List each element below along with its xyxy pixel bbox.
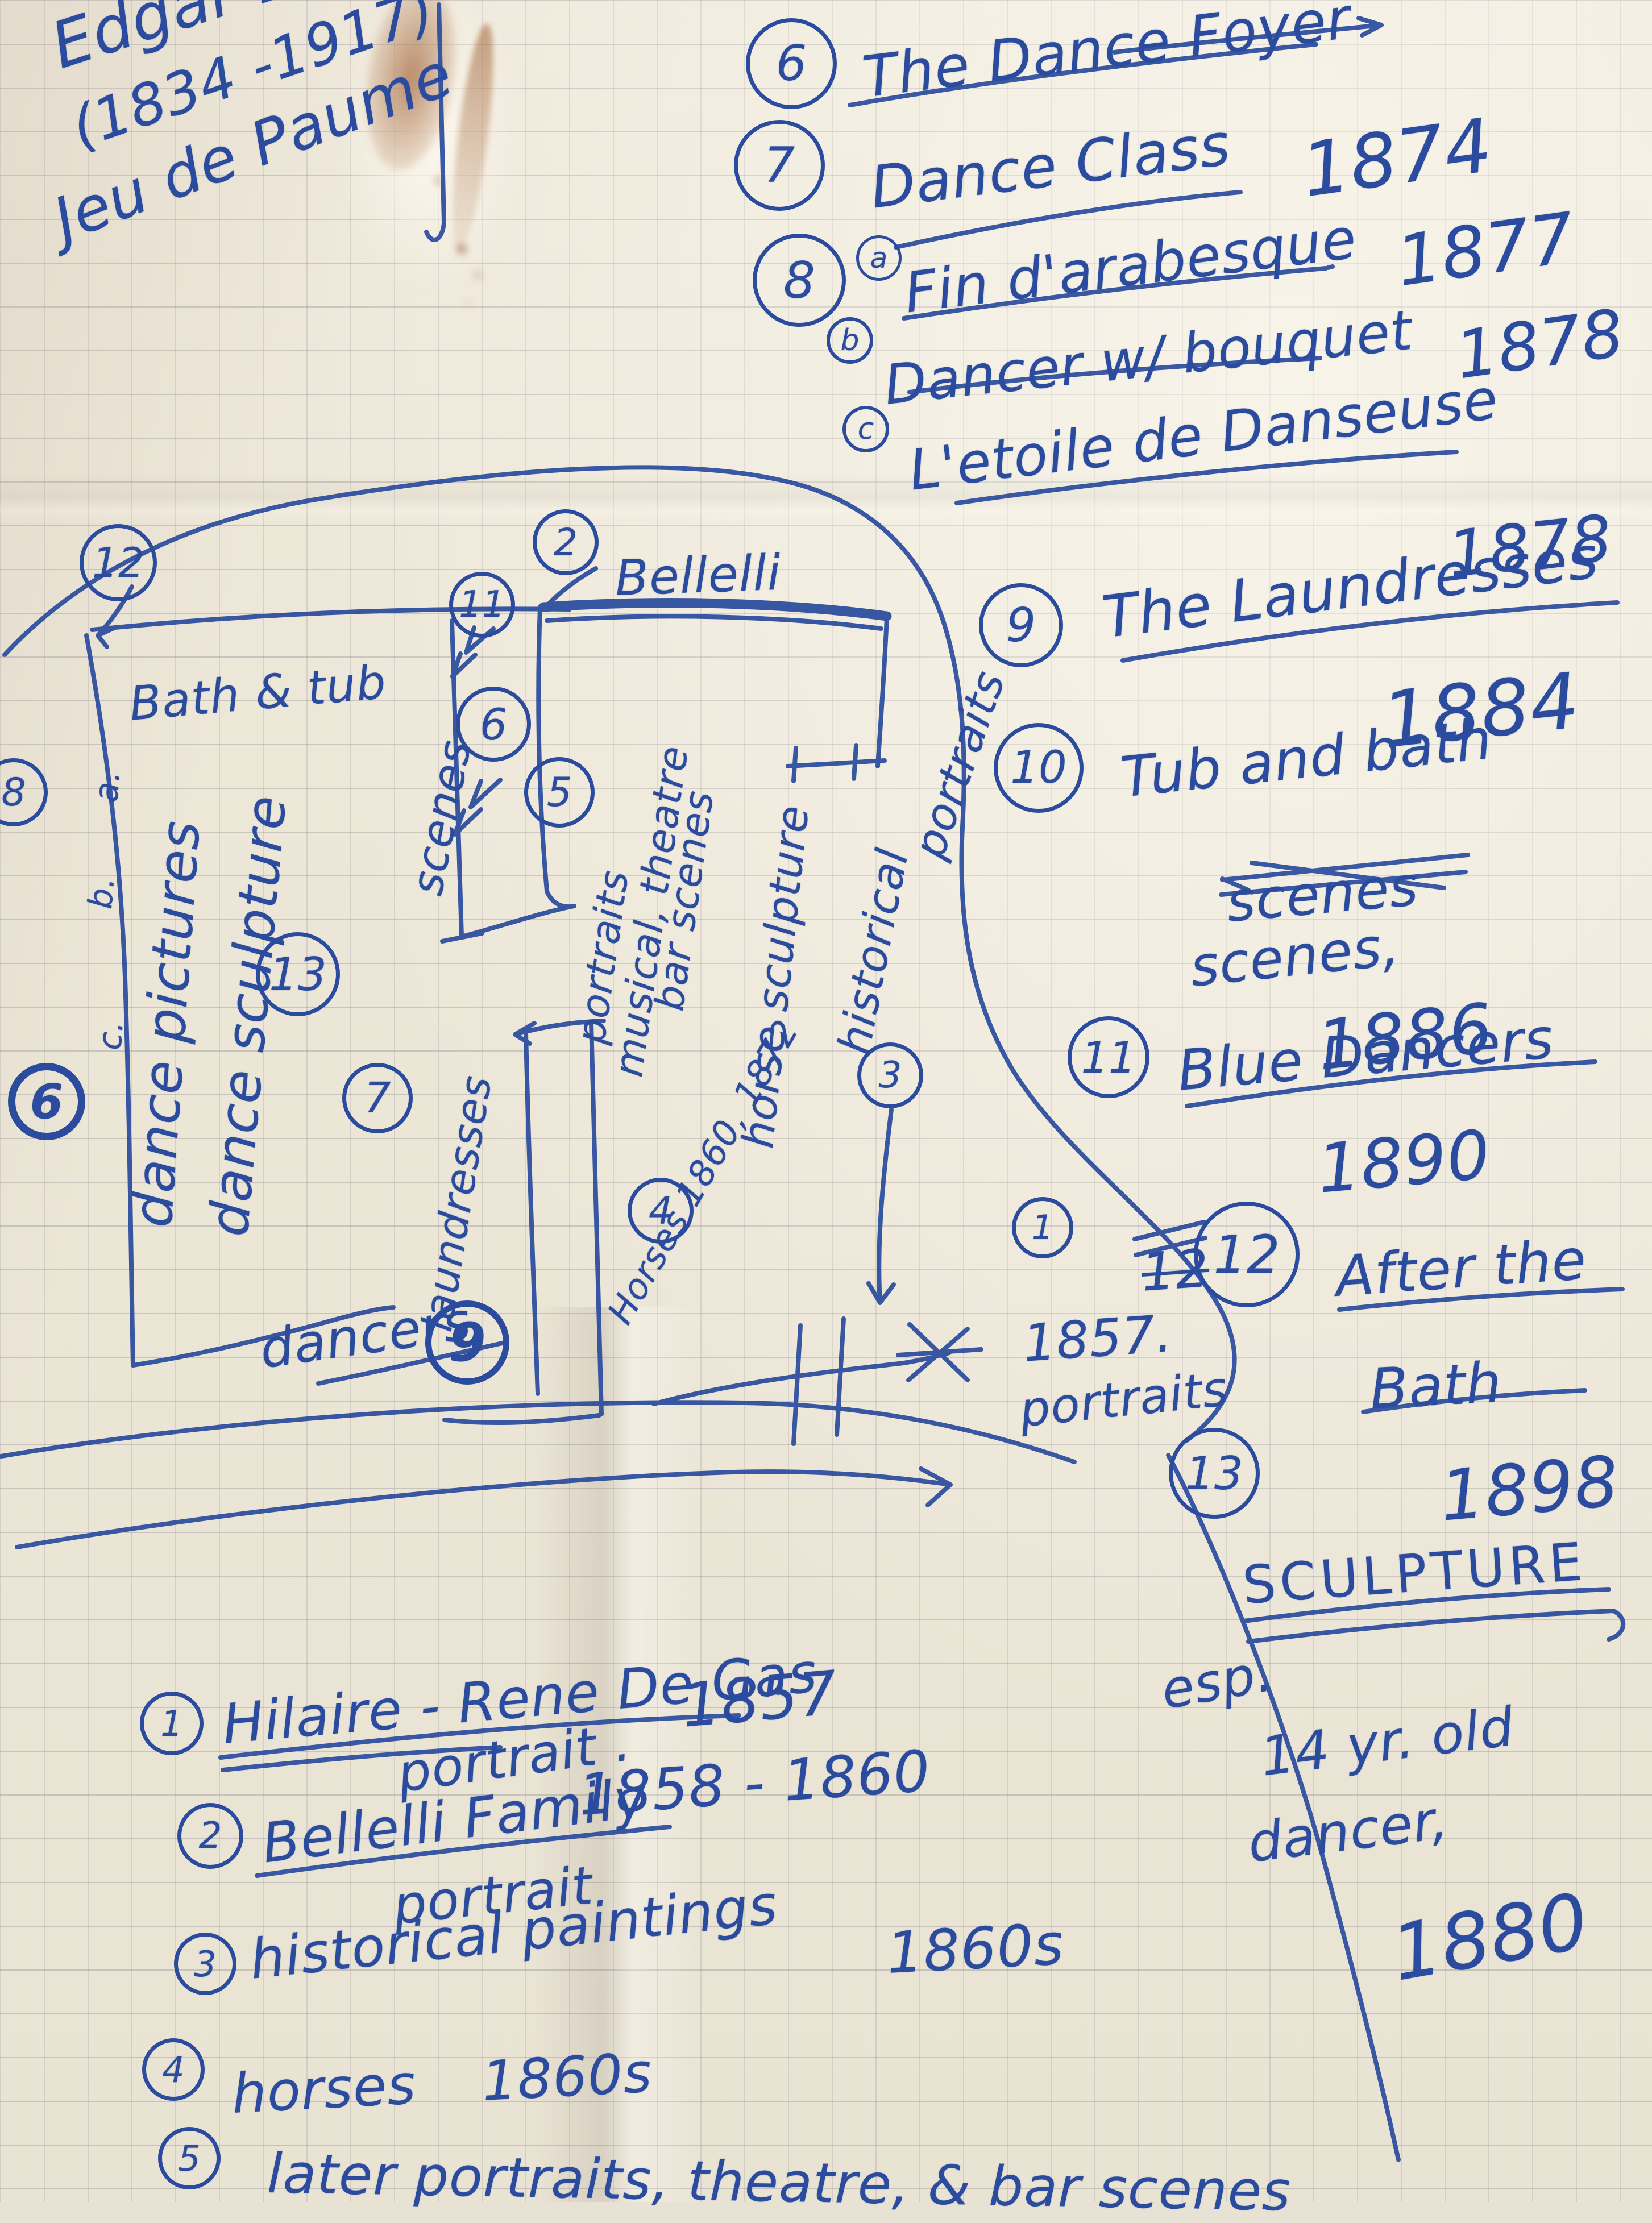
map-num-2: 2 [554,521,578,564]
map-circle-2: 2 [533,509,599,575]
list-circle-12: 12 [1194,1202,1300,1307]
bottom-num-3: 3 [194,1943,216,1985]
bottom-num-5: 5 [178,2138,200,2179]
handwritten-note-photo: Edgar Degas (1834 -1917) Jeu de Paume 6 … [0,0,1652,2202]
map-circle-7: 7 [342,1063,413,1133]
arrow-from-3 [869,1110,894,1303]
list-circle-8: 8 [753,234,846,327]
bottom-circle-5: 5 [158,2127,221,2189]
bottom-num-1: 1 [160,1703,182,1744]
map-num-1: 1 [1032,1208,1053,1248]
map-circle-1: 1 [1012,1197,1073,1258]
list-circle-c: c [842,406,889,452]
map-num-11: 11 [459,584,505,626]
map-circle-5: 5 [524,757,595,828]
bottom-circle-1: 1 [140,1692,204,1755]
list-circle-9: 9 [979,583,1063,667]
list-num-8: 8 [783,251,815,310]
list-num-6: 6 [776,35,807,92]
corridor-right-wall [591,1023,601,1414]
wall-connector [462,906,574,937]
list-marker-a: a [870,242,888,275]
left-room-left-wall [86,635,133,1365]
bottom-wall-upper [1,1402,1074,1462]
right-room-top-thick [543,603,887,616]
bottom-wall-lower-arrow [17,1469,950,1547]
x-mark [898,1324,981,1380]
door-ticks [794,1319,844,1444]
bottom-room-wall [654,1353,949,1404]
map-num-6-left: 6 [30,1074,63,1129]
list-title-bath: Bath [1368,1351,1503,1422]
map-num-12: 12 [92,539,144,587]
list-circle-6: 6 [746,18,837,109]
list-num-10: 10 [1010,742,1066,793]
list-marker-c: c [858,412,874,446]
list-year-1890: 1890 [1314,1115,1493,1208]
list-circle-11: 11 [1068,1016,1149,1098]
list-num-13: 13 [1185,1447,1243,1500]
map-circle-12: 12 [80,524,157,601]
map-anno-1857: 1857. [1021,1304,1174,1374]
list-marker-b: b [840,323,859,358]
map-circle-11: 11 [449,572,515,638]
list-num-11: 11 [1081,1032,1136,1083]
map-num-7: 7 [364,1074,391,1123]
map-num-3: 3 [879,1054,902,1096]
map-num-5: 5 [547,769,572,816]
map-circle-6-left: 6 [8,1063,85,1140]
bottom-circle-2: 2 [177,1803,243,1869]
map-num-8-left: 8 [1,770,26,815]
corridor-left-wall [526,1033,538,1394]
list-circle-b: b [827,317,873,364]
bottom-circle-3: 3 [174,1933,236,1995]
bottom-num-2: 2 [199,1815,222,1857]
list-year-1898: 1898 [1437,1441,1622,1537]
list-circle-8a: a [856,235,902,281]
list-num-7: 7 [764,137,795,194]
map-label-bellelli: Bellelli [614,545,782,607]
bottom-year-1857: 1857 [679,1657,840,1740]
list-circle-10: 10 [994,723,1084,813]
map-num-6-mid: 6 [480,699,507,750]
list-circle-7: 7 [734,120,825,211]
tick-line [788,746,885,781]
map-marker-c: c. [90,1019,131,1052]
right-room-right-wall [878,617,887,766]
corridor-bottom-edge [445,1415,599,1423]
bottom-year-1860s-3: 1860s [885,1911,1065,1987]
bottom-num-4: 4 [162,2049,184,2091]
list-num-12: 12 [1213,1224,1280,1285]
list-circle-13: 13 [1169,1428,1260,1519]
map-marker-a: a. [86,768,128,804]
bottom-title-horses: horses [230,2052,418,2126]
map-marker-b: b. [81,875,122,911]
bottom-year-1860s-4: 1860s [480,2041,654,2113]
list-num-9: 9 [1006,599,1036,653]
bottom-circle-4: 4 [142,2038,205,2101]
